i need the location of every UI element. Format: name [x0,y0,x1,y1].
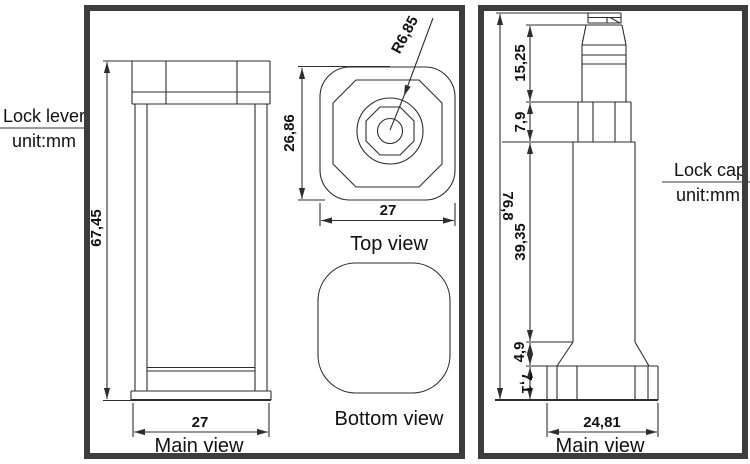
dim-label-cap-knurl-height: 7,9 [512,112,529,133]
dim-cap-base-width: 24,81 [547,403,658,437]
right-unit-label: unit:mm [676,185,740,205]
left-panel-frame [87,8,462,456]
dim-cap-knob-height: 15,25 [512,25,586,101]
dim-label-cap-knob-height: 15,25 [512,44,529,82]
dim-label-lever-top-radius: R6,85 [388,13,422,56]
dim-label-cap-flare-height: 4,9 [511,342,528,363]
lock-lever-title: Lock lever [3,106,85,126]
technical-drawing-canvas: Lock lever unit:mm Lock cap unit:mm 67,4… [0,0,750,464]
dim-lever-top-height: 26,86 [281,67,390,201]
dim-cap-knurl-height: 7,9 [512,102,578,141]
dim-cap-flare-height: 4,9 [511,342,573,365]
lock-cap-title: Lock cap [674,160,746,180]
lever-main-view-label: Main view [155,435,244,457]
dim-lever-width: 27 [133,403,269,437]
dim-label-lever-top-width: 27 [380,202,397,219]
dim-label-cap-total-height: 76,8 [499,191,516,220]
cap-main-view-label: Main view [556,435,645,457]
lever-main-view-drawing [103,61,271,401]
dim-lever-top-width: 27 [320,202,455,226]
dim-cap-total-height: 76,8 [496,13,588,399]
dim-cap-base-height: 7,1 [518,366,547,399]
lever-bottom-view-label: Bottom view [335,408,444,430]
right-side-label: Lock cap unit:mm [662,160,750,205]
lever-top-view-drawing [320,67,455,200]
left-side-label: Lock lever unit:mm [0,106,85,151]
dim-label-cap-base-width: 24,81 [583,414,621,431]
dim-cap-body-height: 39,35 [502,142,573,341]
left-unit-label: unit:mm [12,131,76,151]
dim-label-lever-top-height: 26,86 [281,114,298,152]
lever-bottom-view-drawing [318,263,450,393]
dim-lever-top-radius-leader: R6,85 [388,13,433,130]
lever-top-view-label: Top view [350,233,428,255]
drawing-svg: Lock lever unit:mm Lock cap unit:mm 67,4… [0,0,750,464]
dim-label-cap-body-height: 39,35 [512,223,529,261]
dim-lever-height: 67,45 [88,62,107,399]
dim-label-cap-base-height: 7,1 [518,373,535,394]
dim-label-lever-height: 67,45 [88,209,105,247]
dim-label-lever-width: 27 [192,414,209,431]
